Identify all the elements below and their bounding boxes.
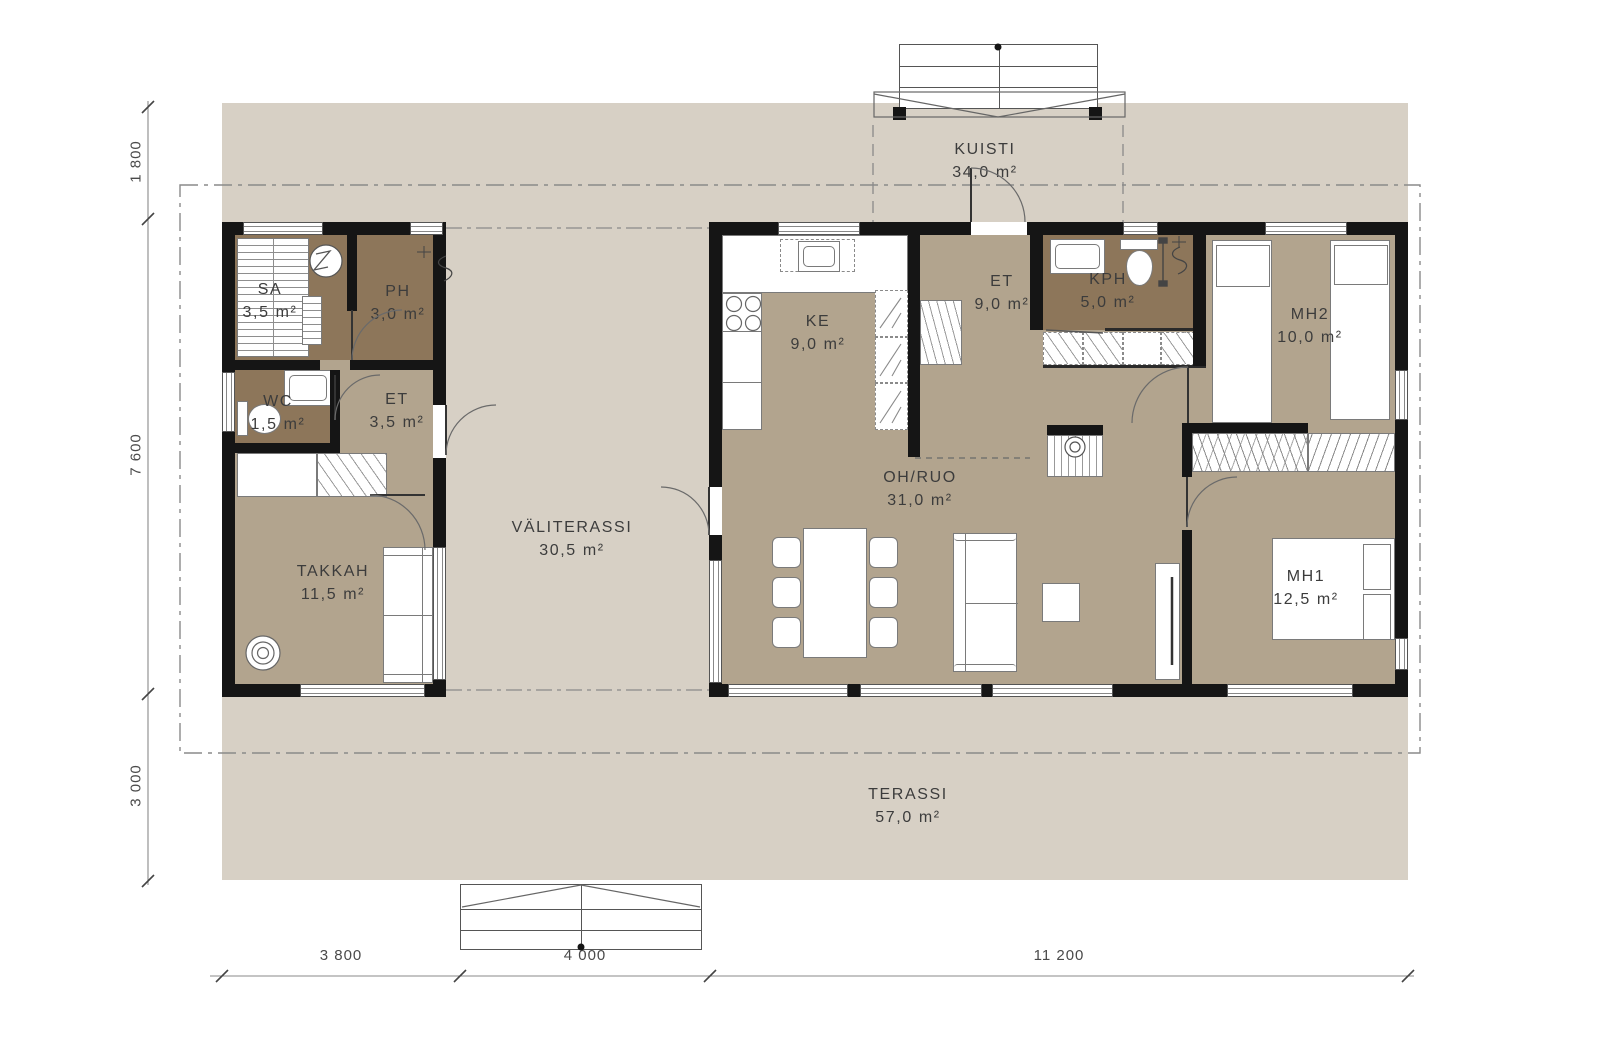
door-swings xyxy=(335,168,1237,550)
north-stairs-marks xyxy=(874,44,1125,118)
takkah-stove-icon xyxy=(246,636,280,670)
stove-burners-icon xyxy=(727,297,761,331)
sauna-stove-icon xyxy=(310,245,342,277)
dimension-rulers xyxy=(142,101,1414,982)
roof-outline xyxy=(180,185,1420,753)
ph-shower-icon xyxy=(417,246,452,281)
linework-overlay xyxy=(0,0,1600,1042)
kph-door-leaf xyxy=(1046,330,1103,333)
fireplace-rings xyxy=(1065,437,1085,457)
ruler-ticks xyxy=(142,101,1414,982)
south-stairs-marks xyxy=(462,885,700,951)
kph-shower-icon xyxy=(1159,236,1187,286)
kuisti-dashed-boundary xyxy=(873,125,1123,222)
floor-plan-canvas: KUISTI 34,0 m² SA 3,5 m² PH 3,0 m² WC 1,… xyxy=(0,0,1600,1042)
tall-cabinet-glyphs xyxy=(880,298,901,423)
valiterassi-dashed-lines xyxy=(446,228,709,690)
